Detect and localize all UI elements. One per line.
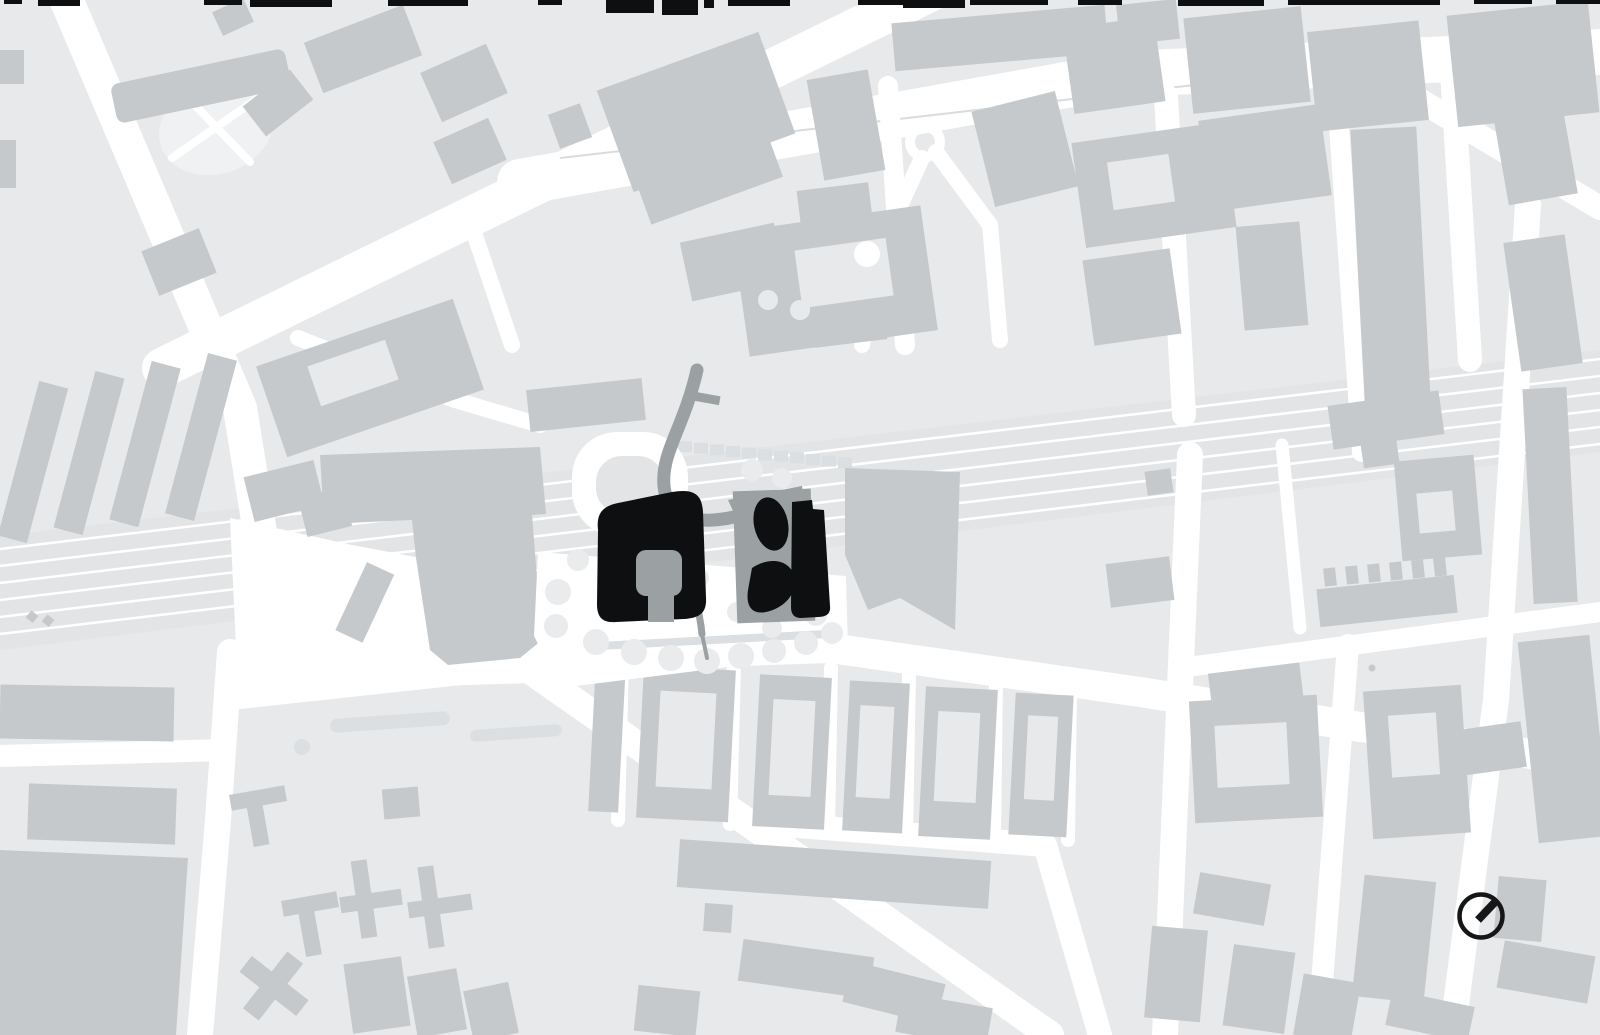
site-plan-map — [0, 0, 1600, 1035]
tree-icon — [821, 622, 843, 644]
sawtooth-step — [710, 444, 724, 455]
cutoff-fragment — [1178, 0, 1264, 6]
cutoff-fragment — [388, 0, 468, 6]
tree-icon — [621, 639, 647, 665]
cutoff-fragment — [4, 0, 22, 4]
sawtooth-step — [726, 446, 740, 457]
cutoff-fragment — [606, 0, 654, 13]
sawtooth-step — [790, 452, 804, 463]
sawtooth-step — [774, 451, 788, 462]
sawtooth-step — [694, 443, 708, 454]
cutoff-fragment — [250, 0, 332, 7]
tree-icon — [794, 631, 818, 655]
tree-icon — [544, 614, 568, 638]
sawtooth-step — [822, 456, 836, 467]
cutoff-fragment — [662, 0, 698, 15]
tree-icon — [762, 639, 786, 663]
cutoff-fragment — [1288, 0, 1440, 5]
cutoff-fragment — [204, 0, 242, 5]
cutoff-fragment — [538, 0, 562, 5]
sawtooth-step — [838, 457, 852, 468]
map-canvas — [0, 0, 1600, 1035]
tree-icon — [658, 645, 684, 671]
campus-complex — [732, 205, 938, 356]
sawtooth-step — [806, 454, 820, 465]
tree-icon — [772, 468, 792, 488]
tree-icon — [567, 549, 589, 571]
sawtooth-step — [758, 449, 772, 460]
cutoff-fragment — [1078, 0, 1122, 5]
cutoff-fragment — [970, 0, 1048, 5]
tree-icon — [545, 579, 571, 605]
cutoff-fragment — [728, 0, 790, 6]
sawtooth-step — [678, 441, 692, 452]
cutoff-fragment — [1474, 0, 1532, 4]
cutoff-fragment — [38, 0, 80, 6]
cutoff-fragment — [1556, 0, 1600, 4]
cutoff-fragment — [858, 0, 904, 5]
cutoff-fragment — [903, 0, 965, 8]
tree-icon — [728, 643, 754, 669]
tree-icon — [741, 459, 763, 481]
cutoff-fragment — [704, 0, 714, 8]
sawtooth-step — [742, 448, 756, 459]
tree-icon — [583, 629, 609, 655]
site-building-slab — [791, 500, 830, 618]
